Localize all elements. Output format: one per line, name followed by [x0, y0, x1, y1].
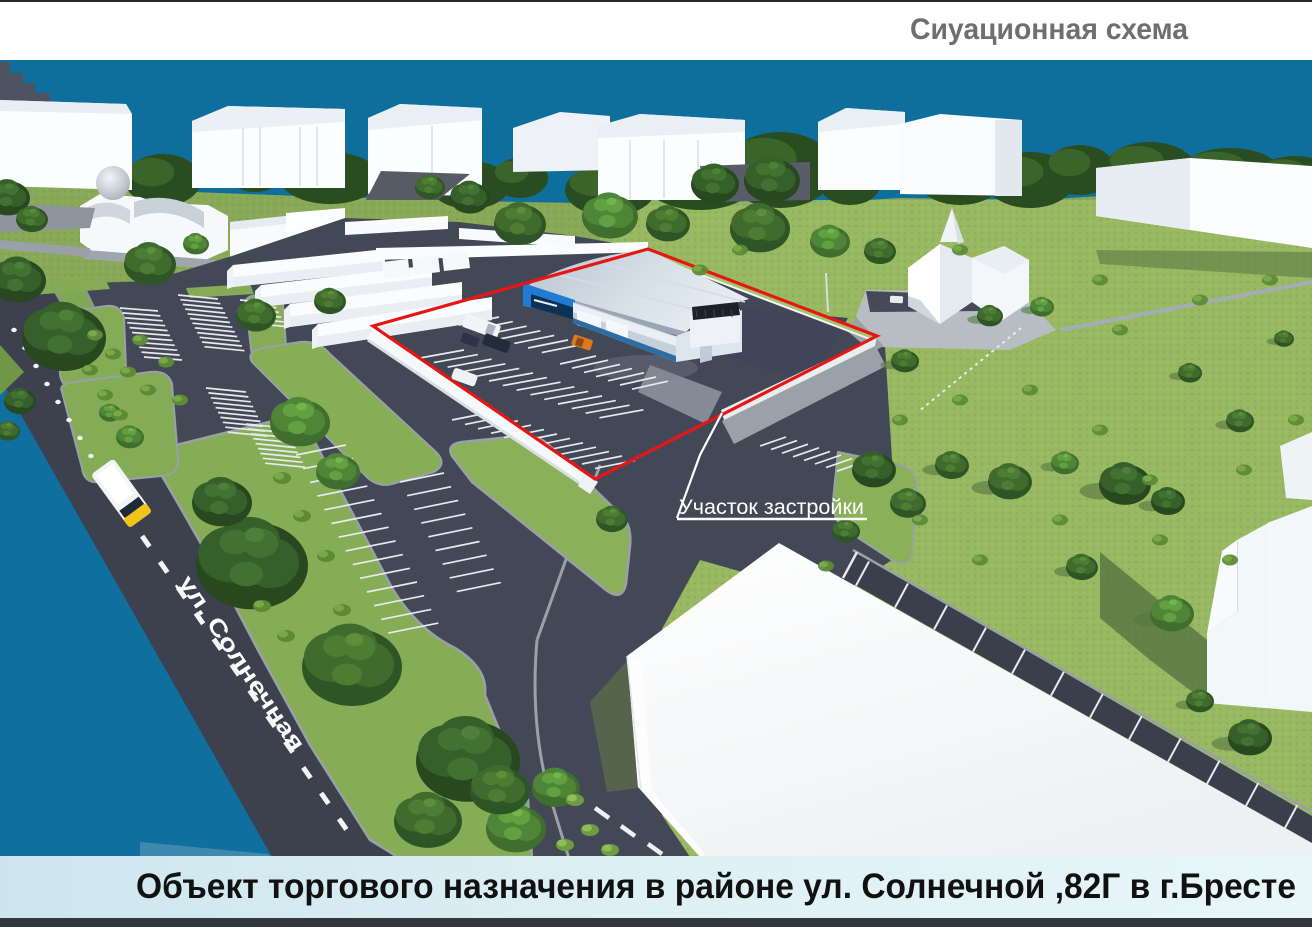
svg-text:Участок застройки: Участок застройки	[679, 496, 864, 519]
svg-text:Сиуационная схема: Сиуационная схема	[910, 13, 1188, 46]
svg-text:Объект торгового назначения в: Объект торгового назначения в районе ул.…	[136, 867, 1296, 906]
